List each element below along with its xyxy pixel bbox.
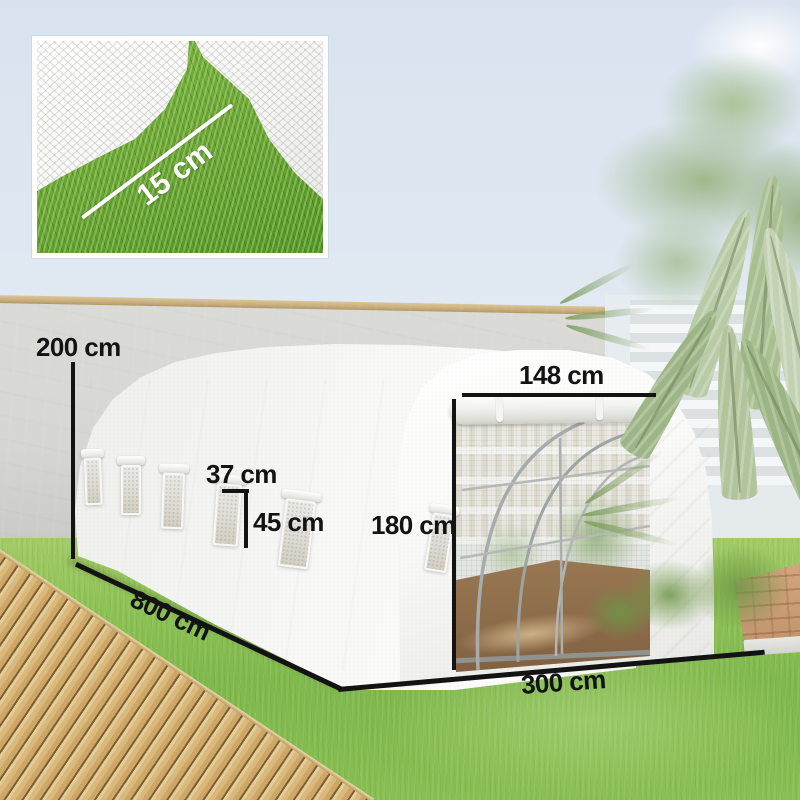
roll-up-window (121, 465, 141, 515)
window-mesh (84, 458, 103, 506)
inset-flap-closeup: 15 cm (32, 36, 328, 258)
window-width-label: 37 cm (206, 459, 277, 490)
roll-up-window (161, 473, 185, 530)
window-height-label: 45 cm (253, 507, 324, 538)
door-width-label: 148 cm (519, 360, 604, 391)
door-height-label: 180 cm (371, 510, 456, 541)
product-dimension-scene: 15 cm 200 cm 800 cm 300 cm 148 cm 180 cm… (0, 0, 800, 800)
tunnel-width-label: 300 cm (520, 664, 607, 701)
door-width-line (462, 393, 656, 397)
window-mesh (161, 473, 185, 530)
door-tie-strap (496, 396, 503, 422)
greenhouse-front-creases (650, 420, 710, 670)
window-roller-bar (117, 456, 144, 465)
window-roller-bar (81, 449, 104, 459)
window-mesh (121, 465, 141, 515)
door-tie-strap (596, 394, 603, 420)
window-height-line (244, 489, 248, 548)
wall-height-line (71, 362, 75, 559)
wall-height-label: 200 cm (36, 332, 121, 363)
roll-up-window (84, 458, 103, 506)
